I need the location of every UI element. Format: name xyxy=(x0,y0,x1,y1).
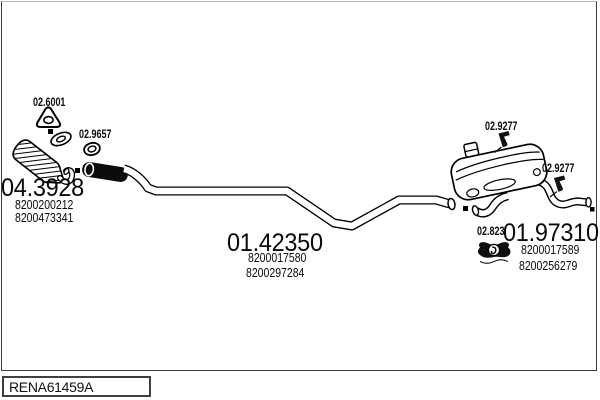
label-rubber-mount-code: 02.823 xyxy=(477,227,504,239)
rear-silencer-oe-ref-1: 8200017589 xyxy=(521,244,579,257)
connection-marker-2 xyxy=(75,168,80,173)
connection-marker-4 xyxy=(590,207,595,212)
label-flex-gasket-code: 02.9657 xyxy=(79,130,111,142)
rear-silencer-oe-ref-2: 8200256279 xyxy=(519,260,577,273)
ring-gasket-icon xyxy=(83,141,102,157)
connection-marker-1 xyxy=(48,129,53,134)
connection-marker-3 xyxy=(463,206,468,211)
catalyst-oe-ref-1: 8200200212 xyxy=(15,199,73,212)
centre-pipe-oe-ref-2: 8200297284 xyxy=(246,267,304,280)
centre-pipe xyxy=(124,169,456,226)
tailpipe xyxy=(540,182,591,207)
catalyst-oe-ref-2: 8200473341 xyxy=(15,212,73,225)
triangle-gasket-icon xyxy=(37,107,60,127)
flex-pipe xyxy=(81,161,129,183)
label-bracket-rear-code: 02.9277 xyxy=(542,164,574,176)
label-bracket-front-code: 02.9277 xyxy=(485,122,517,134)
vehicle-code-box: RENA61459A xyxy=(2,376,151,397)
exhaust-diagram xyxy=(0,0,600,400)
vehicle-code: RENA61459A xyxy=(4,379,93,395)
centre-pipe-oe-ref-1: 8200017580 xyxy=(248,252,306,265)
rear-silencer-body xyxy=(446,129,549,202)
catalog-page: 02.6001 02.9657 02.9277 02.9277 02.823 0… xyxy=(0,0,600,400)
label-front-gasket-code: 02.6001 xyxy=(33,98,65,110)
